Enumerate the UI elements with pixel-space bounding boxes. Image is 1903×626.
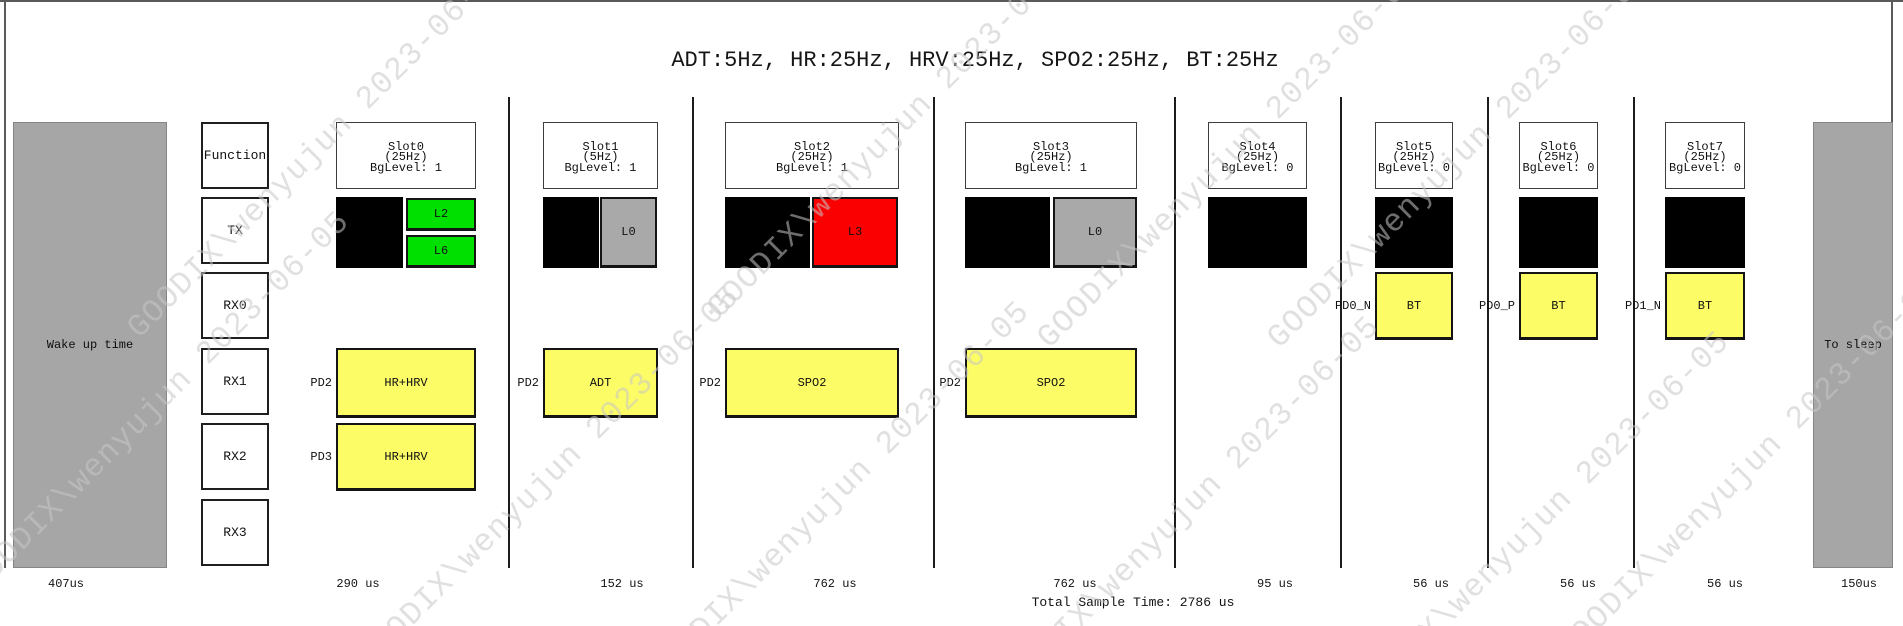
slot-bglevel: BgLevel: 0 bbox=[1669, 163, 1741, 174]
tx-level-box: L0 bbox=[600, 197, 657, 268]
pd-label: PD2 bbox=[274, 348, 332, 418]
slot-bglevel: BgLevel: 1 bbox=[370, 163, 442, 174]
slot-header-2: Slot2(25Hz)BgLevel: 1 bbox=[725, 122, 899, 189]
tx-black-box bbox=[543, 197, 599, 268]
slot-divider-2 bbox=[933, 97, 935, 568]
pd-label: PD0_P bbox=[1457, 272, 1515, 340]
slot-divider-3 bbox=[1174, 97, 1176, 568]
tx-level-box: L6 bbox=[406, 235, 476, 268]
pd-label: PD2 bbox=[903, 348, 961, 418]
watermark-text: GOODIX\wenyujun 2023-06-05 bbox=[1340, 324, 1738, 626]
tx-black-box bbox=[1208, 197, 1307, 268]
tx-level-box: L3 bbox=[812, 197, 898, 268]
rx-function-box: BT bbox=[1375, 272, 1453, 340]
diagram-title: ADT:5Hz, HR:25Hz, HRV:25Hz, SPO2:25Hz, B… bbox=[671, 48, 1278, 73]
to-sleep-duration: 150us bbox=[1841, 577, 1877, 591]
row-label-rx0: RX0 bbox=[201, 272, 269, 339]
slot-bglevel: BgLevel: 1 bbox=[1015, 163, 1087, 174]
row-label-rx3: RX3 bbox=[201, 499, 269, 566]
pd-label: PD1_N bbox=[1603, 272, 1661, 340]
rx-function-box: ADT bbox=[543, 348, 658, 418]
tx-black-box bbox=[1519, 197, 1598, 268]
slot-divider-1 bbox=[692, 97, 694, 568]
slot-bglevel: BgLevel: 1 bbox=[564, 163, 636, 174]
rx-function-box: BT bbox=[1519, 272, 1598, 340]
slot-duration: 762 us bbox=[1053, 577, 1096, 591]
to-sleep-label: To sleep bbox=[1824, 338, 1882, 352]
tx-black-box bbox=[1665, 197, 1745, 268]
slot-header-5: Slot5(25Hz)BgLevel: 0 bbox=[1375, 122, 1453, 189]
slot-duration: 290 us bbox=[336, 577, 379, 591]
wake-up-block: Wake up time bbox=[13, 122, 167, 568]
top-border-line bbox=[0, 0, 1903, 2]
slot-divider-0 bbox=[508, 97, 510, 568]
slot-duration: 762 us bbox=[813, 577, 856, 591]
left-border-line bbox=[4, 0, 6, 568]
to-sleep-block: To sleep bbox=[1813, 122, 1893, 568]
slot-header-1: Slot1(5Hz)BgLevel: 1 bbox=[543, 122, 658, 189]
rx-function-box: SPO2 bbox=[965, 348, 1137, 418]
tx-black-box bbox=[725, 197, 810, 268]
rx-function-box: HR+HRV bbox=[336, 348, 476, 418]
slot-bglevel: BgLevel: 0 bbox=[1221, 163, 1293, 174]
slot-duration: 56 us bbox=[1560, 577, 1596, 591]
slot-header-0: Slot0(25Hz)BgLevel: 1 bbox=[336, 122, 476, 189]
row-label-tx: TX bbox=[201, 197, 269, 264]
pd-label: PD0_N bbox=[1313, 272, 1371, 340]
wake-up-duration: 407us bbox=[48, 577, 84, 591]
wake-up-label: Wake up time bbox=[47, 338, 133, 352]
slot-header-7: Slot7(25Hz)BgLevel: 0 bbox=[1665, 122, 1745, 189]
tx-level-box: L0 bbox=[1053, 197, 1137, 268]
tx-black-box bbox=[336, 197, 403, 268]
tx-black-box bbox=[1375, 197, 1453, 268]
rx-function-box: HR+HRV bbox=[336, 423, 476, 491]
rx-function-box: BT bbox=[1665, 272, 1745, 340]
slot-header-4: Slot4(25Hz)BgLevel: 0 bbox=[1208, 122, 1307, 189]
slot-timing-diagram: ADT:5Hz, HR:25Hz, HRV:25Hz, SPO2:25Hz, B… bbox=[0, 0, 1903, 626]
slot-duration: 56 us bbox=[1413, 577, 1449, 591]
pd-label: PD3 bbox=[274, 423, 332, 491]
row-label-rx1: RX1 bbox=[201, 348, 269, 415]
slot-bglevel: BgLevel: 0 bbox=[1378, 163, 1450, 174]
pd-label: PD2 bbox=[481, 348, 539, 418]
pd-label: PD2 bbox=[663, 348, 721, 418]
tx-black-box bbox=[965, 197, 1050, 268]
row-label-rx2: RX2 bbox=[201, 423, 269, 490]
slot-header-6: Slot6(25Hz)BgLevel: 0 bbox=[1519, 122, 1598, 189]
total-sample-time: Total Sample Time: 2786 us bbox=[1032, 595, 1235, 610]
slot-duration: 95 us bbox=[1257, 577, 1293, 591]
slot-header-3: Slot3(25Hz)BgLevel: 1 bbox=[965, 122, 1137, 189]
tx-level-box: L2 bbox=[406, 198, 476, 231]
slot-duration: 152 us bbox=[600, 577, 643, 591]
slot-duration: 56 us bbox=[1707, 577, 1743, 591]
row-label-function: Function bbox=[201, 122, 269, 189]
rx-function-box: SPO2 bbox=[725, 348, 899, 418]
slot-bglevel: BgLevel: 0 bbox=[1522, 163, 1594, 174]
slot-bglevel: BgLevel: 1 bbox=[776, 163, 848, 174]
